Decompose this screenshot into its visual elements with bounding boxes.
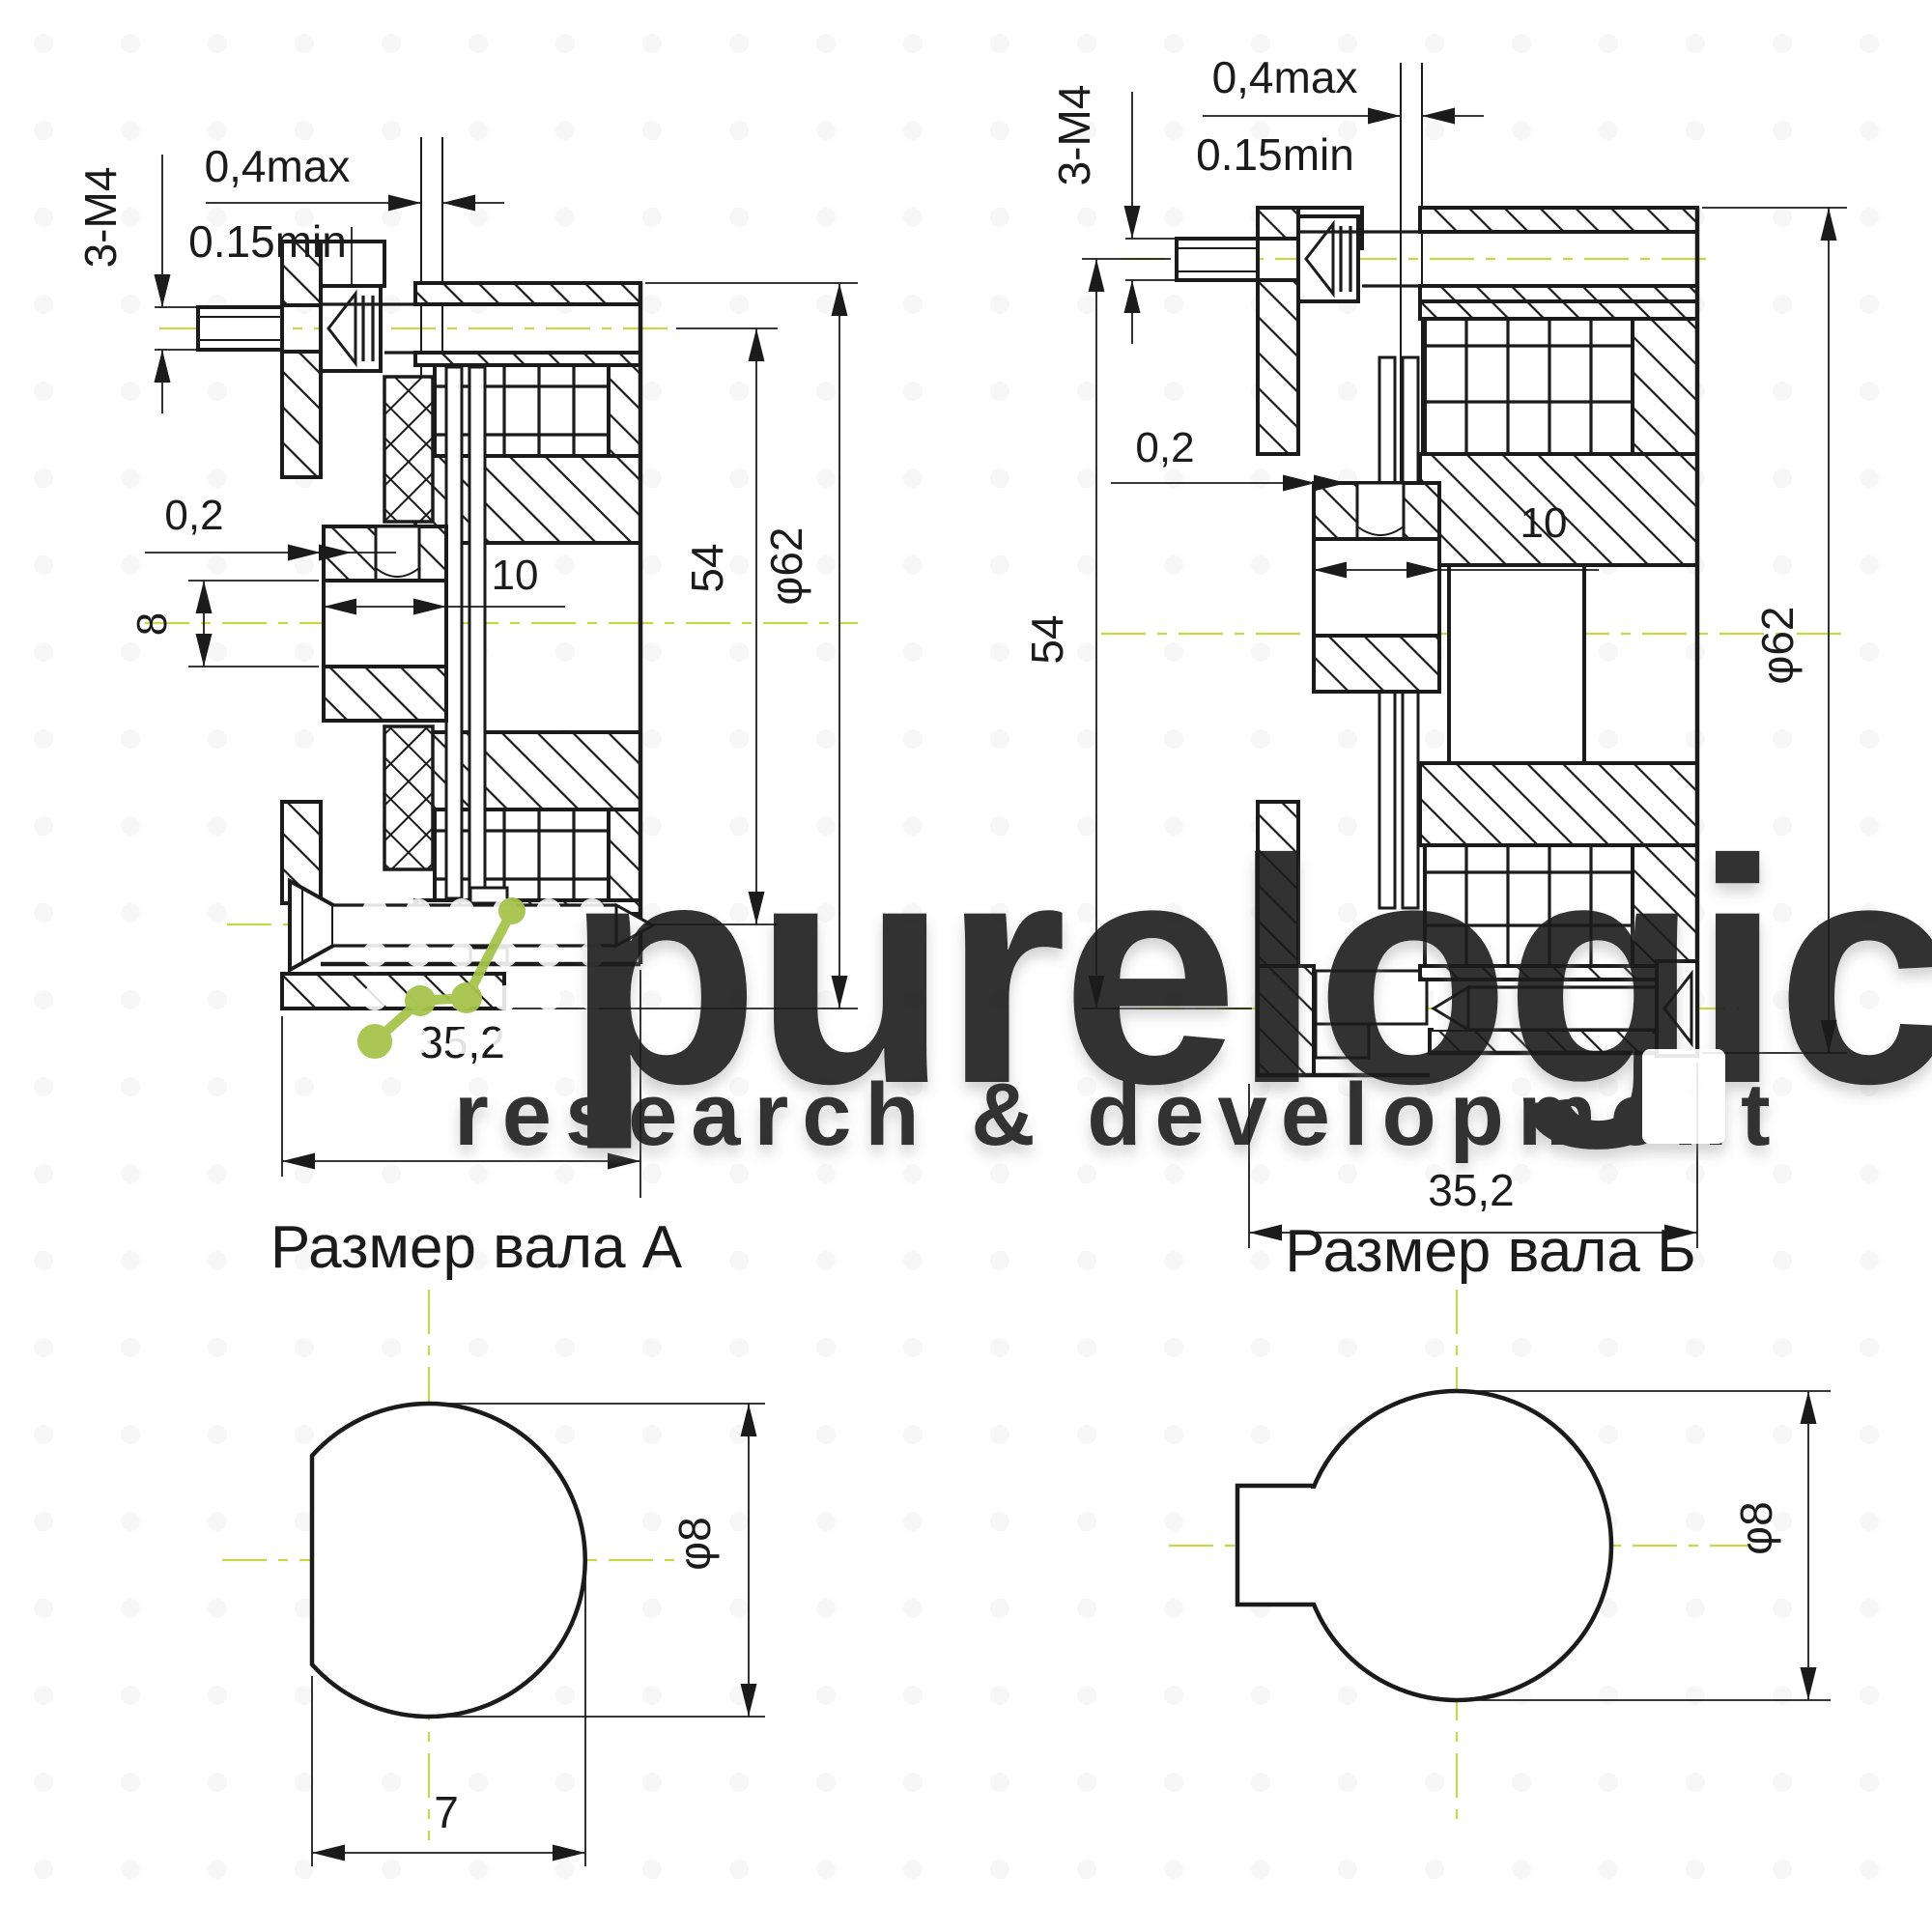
- depth-label-b: 35,2: [1428, 1165, 1515, 1215]
- coil-top-a: [435, 365, 640, 456]
- thread-label-a: 3-М4: [75, 167, 126, 269]
- shaft-a-dia-label: φ8: [669, 1517, 720, 1570]
- thread-label-b: 3-М4: [1049, 85, 1099, 186]
- shaft-a-title: Размер вала А: [270, 1214, 683, 1281]
- outer-dia-label-a: φ62: [761, 527, 811, 606]
- watermark-tagline: research & development: [454, 1065, 1784, 1164]
- shaft-b-profile: [1302, 1391, 1611, 1700]
- clearance-label-b: 0,2: [1135, 424, 1194, 471]
- watermark: purelogic research & development: [357, 793, 1932, 1164]
- outer-dia-label-b: φ62: [1752, 607, 1803, 685]
- shaft-a-flat-label: 7: [434, 1787, 459, 1837]
- coil-top-b: [1425, 319, 1697, 454]
- gap-min-label-a: 0.15min: [188, 216, 347, 267]
- clearance-label-a: 0,2: [164, 492, 223, 539]
- hub-width-label-b: 10: [1520, 499, 1568, 547]
- gap-max-label-a: 0,4max: [205, 141, 351, 191]
- drawing-canvas: 3-М4 0,4max 0.15min 0,2 8: [0, 0, 1932, 1932]
- watermark-logo-block: [1642, 1049, 1725, 1144]
- watermark-text-group: purelogic research & development: [454, 793, 1932, 1164]
- technical-drawing-page: 3-М4 0,4max 0.15min 0,2 8: [0, 0, 1932, 1932]
- height-label-b: 54: [1022, 614, 1072, 664]
- hub-a: [324, 526, 446, 721]
- hub-b: [1314, 483, 1439, 692]
- shaft-b-keyway: [1236, 1486, 1317, 1605]
- bore-label-a: 8: [128, 612, 176, 636]
- gap-min-label-b: 0.15min: [1196, 129, 1354, 180]
- shaft-b-dia-label: φ8: [1731, 1501, 1781, 1554]
- gap-max-label-b: 0,4max: [1212, 52, 1358, 102]
- height-label-a: 54: [682, 543, 732, 592]
- shaft-b-title: Размер вала Б: [1285, 1218, 1696, 1285]
- hub-width-label-a: 10: [492, 552, 539, 599]
